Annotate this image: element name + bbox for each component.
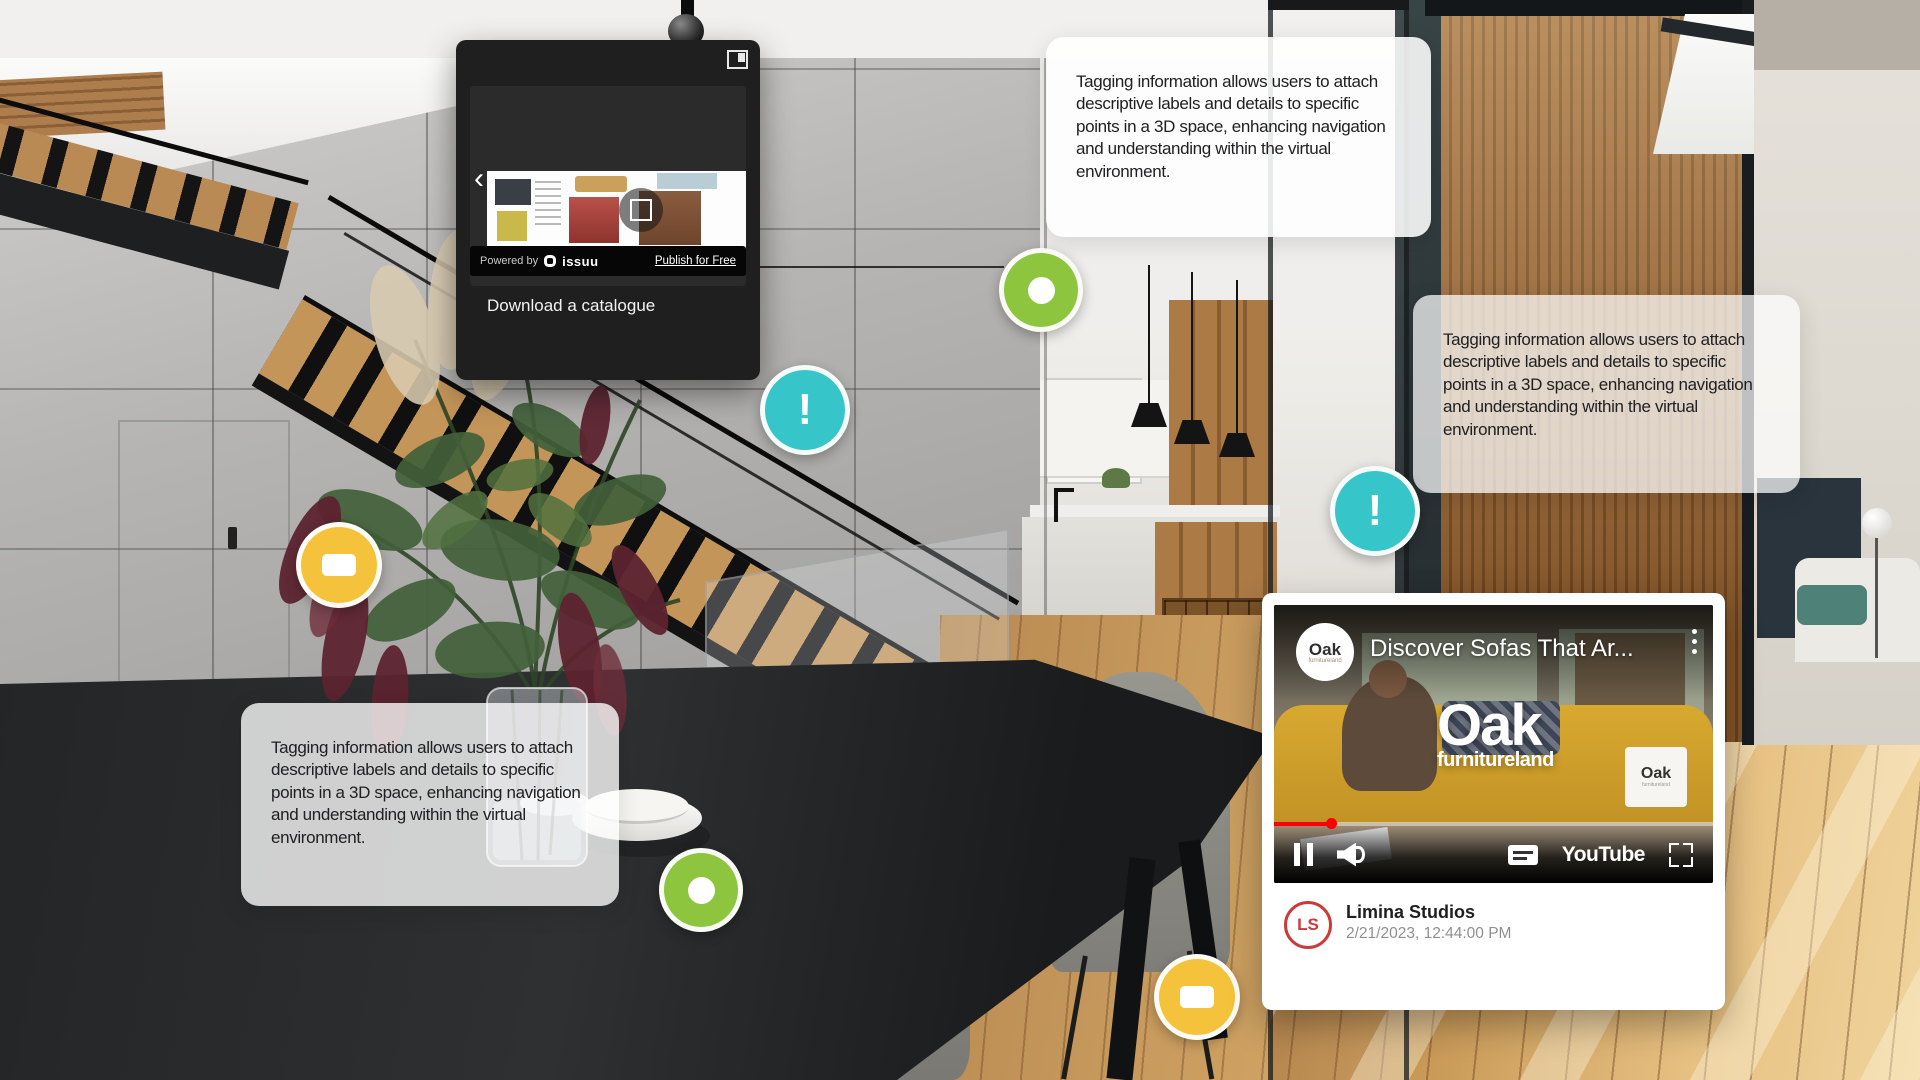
- tooltip-text: Tagging information allows users to atta…: [1076, 72, 1385, 181]
- fullscreen-icon[interactable]: [1669, 843, 1693, 867]
- author-name: Limina Studios: [1346, 902, 1475, 923]
- preview-text-lines: [535, 181, 561, 225]
- teal-throw: [1797, 585, 1867, 625]
- speech-bubble-icon: [322, 554, 356, 576]
- catalogue-caption[interactable]: Download a catalogue: [487, 296, 655, 316]
- virtual-tour-scene: ‹ Powered by issuu Publish f: [0, 0, 1920, 1080]
- preview-photo: [657, 173, 717, 189]
- tag-marker-comment-1[interactable]: [296, 522, 382, 608]
- preview-banner: [575, 176, 627, 192]
- tag-tooltip-right: Tagging information allows users to atta…: [1413, 295, 1800, 493]
- kitchen-faucet: [1054, 488, 1074, 492]
- powered-by-label: Powered by: [480, 255, 538, 267]
- glass-wall-top-frame: [1425, 0, 1755, 16]
- brand-corner-sub: furnitureland: [1642, 782, 1670, 788]
- ring-icon: [688, 877, 715, 904]
- closed-captions-icon[interactable]: [1508, 845, 1538, 865]
- tag-marker-media-1[interactable]: [999, 248, 1083, 332]
- living-room-ceiling: [1754, 0, 1920, 70]
- publish-for-free-link[interactable]: Publish for Free: [655, 255, 736, 267]
- channel-logo-text: Oak: [1309, 641, 1341, 658]
- tag-marker-media-2[interactable]: [659, 848, 743, 932]
- author-initials: LS: [1297, 915, 1319, 935]
- youtube-player[interactable]: Oak furnitureland Discover Sofas That Ar…: [1274, 605, 1713, 883]
- pendant-lamp-cord: [1236, 280, 1238, 435]
- preview-photo: [497, 211, 527, 241]
- catalogue-preview[interactable]: [487, 171, 746, 249]
- issuu-bar: Powered by issuu Publish for Free: [470, 246, 746, 276]
- brand-overlay: Oak furnitureland: [1437, 697, 1554, 772]
- video-timestamp: 2/21/2023, 12:44:00 PM: [1346, 925, 1511, 943]
- brand-corner-main: Oak: [1641, 766, 1671, 782]
- floor-lamp: [1862, 508, 1892, 538]
- tag-marker-info-1[interactable]: !: [760, 365, 850, 455]
- video-popup-card: Oak furnitureland Discover Sofas That Ar…: [1262, 593, 1725, 1010]
- counter-plant: [1102, 468, 1130, 488]
- issuu-wordmark: issuu: [562, 254, 598, 269]
- brand-main-text: Oak: [1437, 697, 1554, 755]
- tag-tooltip-top: Tagging information allows users to atta…: [1046, 37, 1431, 237]
- preview-photo: [495, 179, 531, 205]
- open-panel-icon[interactable]: [727, 50, 748, 69]
- video-title[interactable]: Discover Sofas That Ar...: [1370, 635, 1634, 663]
- tag-marker-info-2[interactable]: !: [1330, 466, 1420, 556]
- sliding-door-top-frame: [1268, 0, 1409, 10]
- player-controls: YouTube: [1274, 826, 1713, 883]
- catalogue-widget: ‹ Powered by issuu Publish f: [456, 40, 760, 380]
- kitchen-faucet: [1054, 488, 1058, 522]
- issuu-logo-icon: [544, 255, 556, 267]
- exclamation-icon: !: [1368, 489, 1383, 533]
- brand-sub-text: furnitureland: [1437, 749, 1554, 772]
- door-handle: [228, 527, 237, 549]
- speech-bubble-icon: [1180, 986, 1214, 1008]
- brand-corner-logo: Oak furnitureland: [1625, 747, 1687, 807]
- tooltip-text: Tagging information allows users to atta…: [1443, 330, 1752, 439]
- volume-icon[interactable]: [1337, 843, 1365, 867]
- channel-avatar[interactable]: Oak furnitureland: [1296, 623, 1354, 681]
- youtube-logo[interactable]: YouTube: [1562, 843, 1645, 867]
- pause-icon[interactable]: [1294, 843, 1313, 866]
- leader-line: [758, 266, 1004, 268]
- pendant-lamp-cord: [1148, 265, 1150, 405]
- ring-icon: [1028, 277, 1055, 304]
- preview-photo: [569, 197, 619, 243]
- kitchen-counter: [1030, 505, 1280, 517]
- channel-logo-subtext: furnitureland: [1308, 658, 1341, 664]
- exclamation-icon: !: [798, 388, 813, 432]
- author-avatar: LS: [1284, 901, 1332, 949]
- tag-tooltip-bottom-left: Tagging information allows users to atta…: [241, 703, 619, 906]
- chevron-left-icon[interactable]: ‹: [474, 164, 484, 194]
- floor-lamp-pole: [1875, 538, 1878, 658]
- kitchen-cabinets: [1040, 380, 1174, 478]
- kebab-menu-icon[interactable]: [1692, 629, 1697, 654]
- powered-by-issuu-link[interactable]: Powered by issuu: [480, 254, 599, 269]
- fullscreen-icon[interactable]: [619, 188, 663, 232]
- tag-marker-comment-2[interactable]: [1154, 954, 1240, 1040]
- pendant-lamp-cord: [1191, 272, 1193, 422]
- tooltip-text: Tagging information allows users to atta…: [271, 738, 580, 847]
